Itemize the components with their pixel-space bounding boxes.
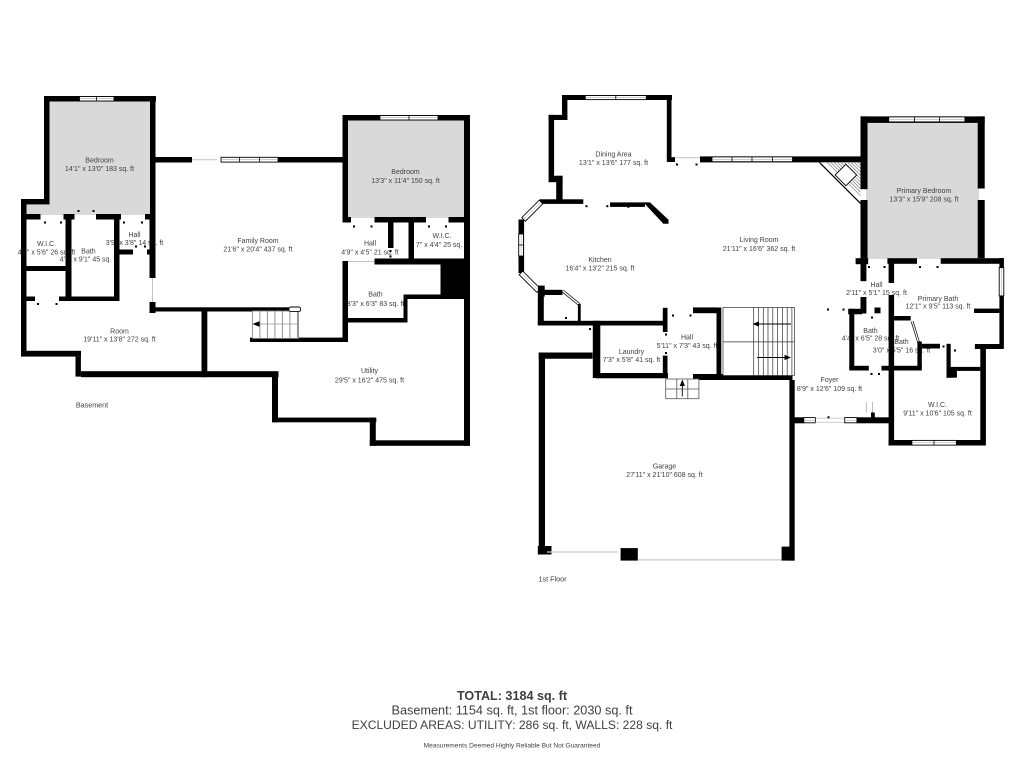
svg-text:Family Room: Family Room xyxy=(237,238,278,245)
svg-text:W.I.C.: W.I.C. xyxy=(37,241,56,248)
svg-text:13'3" x 15'9" 208 sq. ft: 13'3" x 15'9" 208 sq. ft xyxy=(889,197,958,204)
svg-text:Basement: 1154 sq. ft, 1st flo: Basement: 1154 sq. ft, 1st floor: 2030 s… xyxy=(392,704,633,718)
svg-text:Bedroom: Bedroom xyxy=(85,158,114,165)
svg-text:Hall: Hall xyxy=(681,335,694,342)
svg-text:Hall: Hall xyxy=(364,241,377,248)
svg-text:Bath: Bath xyxy=(81,249,96,256)
svg-text:Hall: Hall xyxy=(128,232,141,239)
svg-text:Laundry: Laundry xyxy=(619,349,645,356)
svg-text:13'3" x 11'4" 150 sq. ft: 13'3" x 11'4" 150 sq. ft xyxy=(371,178,440,185)
svg-text:7" x 4'4" 25 sq. ft: 7" x 4'4" 25 sq. ft xyxy=(416,242,468,249)
svg-text:Bath: Bath xyxy=(368,292,383,299)
svg-text:7'3" x 5'8" 41 sq. ft: 7'3" x 5'8" 41 sq. ft xyxy=(603,357,661,364)
svg-text:5'11" x 7'3" 43 sq. ft: 5'11" x 7'3" 43 sq. ft xyxy=(657,343,718,350)
svg-text:27'11" x 21'10" 608 sq. ft: 27'11" x 21'10" 608 sq. ft xyxy=(626,472,702,479)
svg-text:Dining Area: Dining Area xyxy=(595,152,631,159)
svg-text:19'11" x 13'8" 272 sq. ft: 19'11" x 13'8" 272 sq. ft xyxy=(83,337,156,344)
svg-text:Basement: Basement xyxy=(76,401,108,410)
svg-text:29'5" x 16'2" 475 sq. ft: 29'5" x 16'2" 475 sq. ft xyxy=(335,378,404,385)
svg-text:Bath: Bath xyxy=(863,328,878,335)
svg-text:Utility: Utility xyxy=(361,368,379,375)
svg-text:Primary Bedroom: Primary Bedroom xyxy=(897,188,952,195)
svg-text:Foyer: Foyer xyxy=(821,377,840,384)
svg-text:TOTAL: 3184 sq. ft: TOTAL: 3184 sq. ft xyxy=(457,689,568,703)
svg-text:W.I.C.: W.I.C. xyxy=(928,402,947,409)
svg-text:8'9" x 12'6" 109 sq. ft: 8'9" x 12'6" 109 sq. ft xyxy=(797,386,862,393)
svg-text:16'4" x 13'2" 215 sq. ft: 16'4" x 13'2" 215 sq. ft xyxy=(565,266,634,273)
svg-text:Measurements Deemed Highly Rel: Measurements Deemed Highly Reliable But … xyxy=(424,743,601,750)
svg-text:3'3" x 6'3" 83 sq. ft: 3'3" x 6'3" 83 sq. ft xyxy=(347,301,405,308)
svg-text:1st Floor: 1st Floor xyxy=(539,575,568,584)
svg-text:W.I.C.: W.I.C. xyxy=(432,233,451,240)
svg-text:2'11" x 5'1" 15 sq. ft: 2'11" x 5'1" 15 sq. ft xyxy=(846,290,907,297)
svg-text:Hall: Hall xyxy=(870,282,883,289)
svg-text:9'11" x 10'6" 105 sq. ft: 9'11" x 10'6" 105 sq. ft xyxy=(903,411,972,418)
svg-text:Room: Room xyxy=(110,329,129,336)
svg-text:EXCLUDED AREAS: UTILITY: 286 s: EXCLUDED AREAS: UTILITY: 286 sq. ft, WAL… xyxy=(352,718,673,732)
svg-text:Primary Bath: Primary Bath xyxy=(918,296,959,303)
svg-text:13'1" x 13'6" 177 sq. ft: 13'1" x 13'6" 177 sq. ft xyxy=(579,160,648,167)
svg-text:14'1" x 13'0" 183 sq. ft: 14'1" x 13'0" 183 sq. ft xyxy=(65,166,134,173)
svg-text:21'6" x 20'4" 437 sq. ft: 21'6" x 20'4" 437 sq. ft xyxy=(223,247,292,254)
svg-text:21'11" x 16'6" 362 sq. ft: 21'11" x 16'6" 362 sq. ft xyxy=(723,246,796,253)
svg-text:12'1" x 9'5" 113 sq. ft: 12'1" x 9'5" 113 sq. ft xyxy=(906,304,971,311)
svg-text:Living Room: Living Room xyxy=(740,237,779,244)
svg-text:Kitchen: Kitchen xyxy=(588,257,611,264)
svg-text:Garage: Garage xyxy=(653,464,676,471)
svg-text:Bedroom: Bedroom xyxy=(391,169,420,176)
svg-text:Bath: Bath xyxy=(894,339,909,346)
